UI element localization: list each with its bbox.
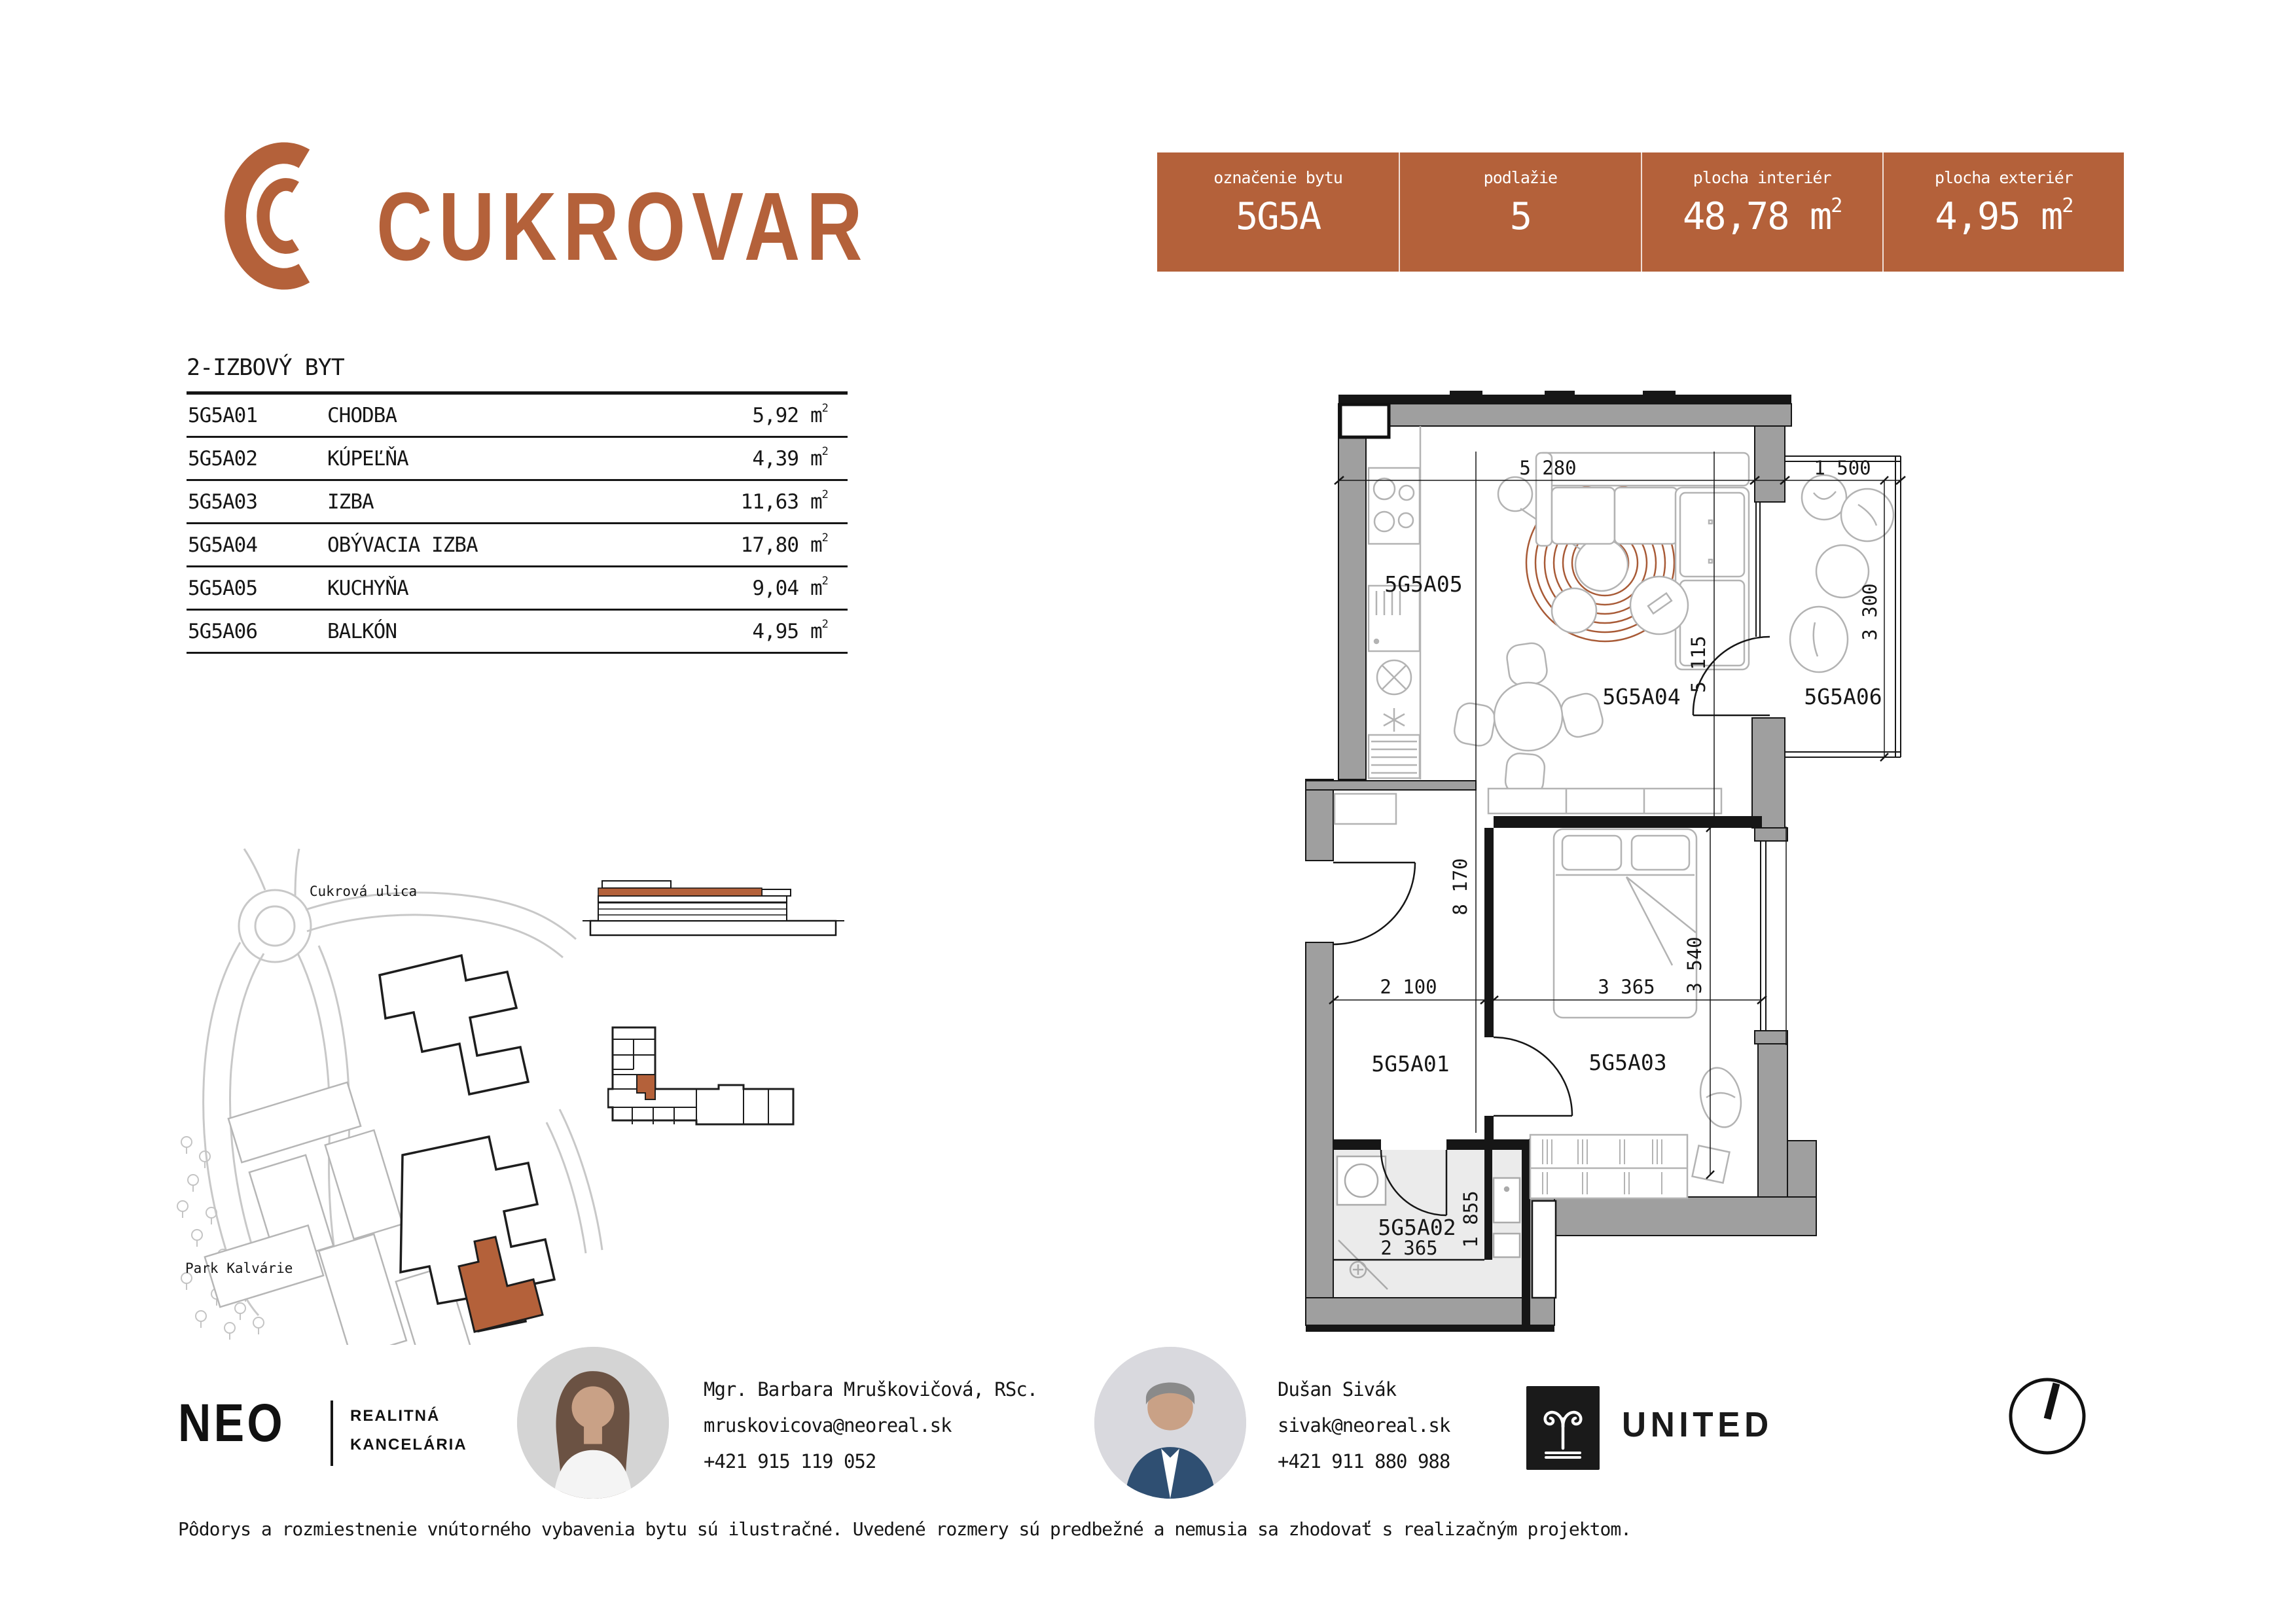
table-row: 5G5A01 CHODBA 5,92 m2 [187,395,848,438]
agent-email: mruskovicova@neoreal.sk [704,1414,1037,1436]
united-tree-icon [1526,1386,1600,1470]
site-map: Cukrová ulica Park Kalvárie [167,847,638,1345]
neo-divider [331,1400,333,1466]
table-row: 5G5A04 OBÝVACIA IZBA 17,80 m2 [187,524,848,567]
summary-label: označenie bytu [1213,168,1342,187]
agent2-photo [1094,1347,1246,1499]
room-label-living: 5G5A04 [1602,684,1680,709]
dim-balcony-top: 1 500 [1814,457,1871,479]
summary-label: plocha exteriér [1935,168,2073,187]
dim-hall-width: 2 100 [1380,976,1437,998]
dim-balcony-side: 3 300 [1859,583,1881,640]
park-label: Park Kalvárie [185,1260,293,1276]
neo-logo: NEO [178,1393,304,1454]
summary-cell-unit-id: označenie bytu 5G5A [1157,152,1399,272]
north-indicator [2001,1369,2093,1463]
wardrobe [1530,1135,1687,1198]
room-list-body: 5G5A01 CHODBA 5,92 m2 5G5A02 KÚPEĽŇA 4,3… [187,391,848,654]
wall-shaft [1340,404,1389,437]
united-logo [1526,1386,1600,1472]
room-label-balcony: 5G5A06 [1804,684,1882,709]
summary-value: 48,78 m2 [1683,195,1841,238]
street-label: Cukrová ulica [310,883,417,899]
summary-value: 4,95 m2 [1935,195,2072,238]
north-arrow-icon [2001,1369,2093,1461]
avatar [1094,1347,1246,1499]
room-label-bath: 5G5A02 [1378,1215,1456,1240]
neo-tagline-2: KANCELÁRIA [350,1436,467,1454]
neo-taglines: REALITNÁ KANCELÁRIA [350,1407,467,1454]
armchair [1693,1064,1746,1183]
dim-bedroom-width: 3 365 [1598,976,1655,998]
disclaimer: Pôdorys a rozmiestnenie vnútorného vybav… [178,1518,1631,1540]
dim-bedroom-height: 3 540 [1683,936,1706,993]
tv-sideboard [1488,789,1721,813]
neo-tagline-1: REALITNÁ [350,1407,467,1425]
footprint-outline [608,1027,793,1124]
table-row: 5G5A05 KUCHYŇA 9,04 m2 [187,567,848,611]
dim-living-side: 5 115 [1687,635,1710,692]
side-table [1630,577,1688,634]
cukrovar-c-icon [195,139,339,293]
agent-phone: +421 915 119 052 [704,1450,1037,1472]
table-row: 5G5A03 IZBA 11,63 m2 [187,481,848,524]
summary-cell-floor: podlažie 5 [1399,152,1640,272]
agent2-contact: Dušan Sivák sivak@neoreal.sk +421 911 88… [1278,1378,1450,1486]
dim-top: 5 280 [1519,457,1576,479]
hall-sideboard [1335,794,1396,824]
agent1-contact: Mgr. Barbara Mruškovičová, RSc. mruskovi… [704,1378,1037,1486]
room-list: 2-IZBOVÝ BYT 5G5A01 CHODBA 5,92 m2 5G5A0… [187,355,848,654]
apartment-summary-table: označenie bytu 5G5A podlažie 5 plocha in… [1157,152,2124,272]
dim-interior-height: 8 170 [1449,858,1471,915]
agent-phone: +421 911 880 988 [1278,1450,1450,1472]
floor-plan: 5 280 1 500 3 300 5 115 8 170 2 100 3 36… [1299,389,1960,1335]
summary-cell-exterior-area: plocha exteriér 4,95 m2 [1882,152,2124,272]
page-title: CUKROVAR [376,171,869,283]
avatar [517,1347,669,1499]
agent-name: Dušan Sivák [1278,1378,1450,1400]
dim-bath-width: 2 365 [1380,1237,1437,1259]
room-label-kitchen: 5G5A05 [1384,571,1462,597]
park-trees [177,1137,264,1340]
dim-bath-height: 1 855 [1460,1190,1482,1247]
summary-label: podlažie [1484,168,1557,187]
table-row: 5G5A06 BALKÓN 4,95 m2 [187,611,848,654]
united-logo-text: UNITED [1622,1404,1773,1445]
building-elevation [583,880,844,940]
table-row: 5G5A02 KÚPEĽŇA 4,39 m2 [187,438,848,481]
summary-label: plocha interiér [1693,168,1831,187]
balcony-plants [1790,475,1893,672]
room-label-hall: 5G5A01 [1371,1051,1449,1077]
room-list-title: 2-IZBOVÝ BYT [187,355,848,381]
highlighted-floor [598,888,762,896]
summary-cell-interior-area: plocha interiér 48,78 m2 [1641,152,1882,272]
dining-set [1452,641,1605,796]
agent-name: Mgr. Barbara Mruškovičová, RSc. [704,1378,1037,1400]
room-label-bedroom: 5G5A03 [1588,1050,1666,1075]
agent1-photo [517,1347,669,1499]
kitchen-unit [1369,426,1420,779]
floor-footprint [607,1026,804,1139]
summary-value: 5G5A [1236,195,1320,238]
summary-value: 5 [1510,195,1531,238]
duct-shaft [1532,1201,1556,1298]
neo-logo-text: NEO [178,1393,285,1454]
brand-logo [195,139,339,296]
agent-email: sivak@neoreal.sk [1278,1414,1450,1436]
sofa [1536,453,1749,669]
